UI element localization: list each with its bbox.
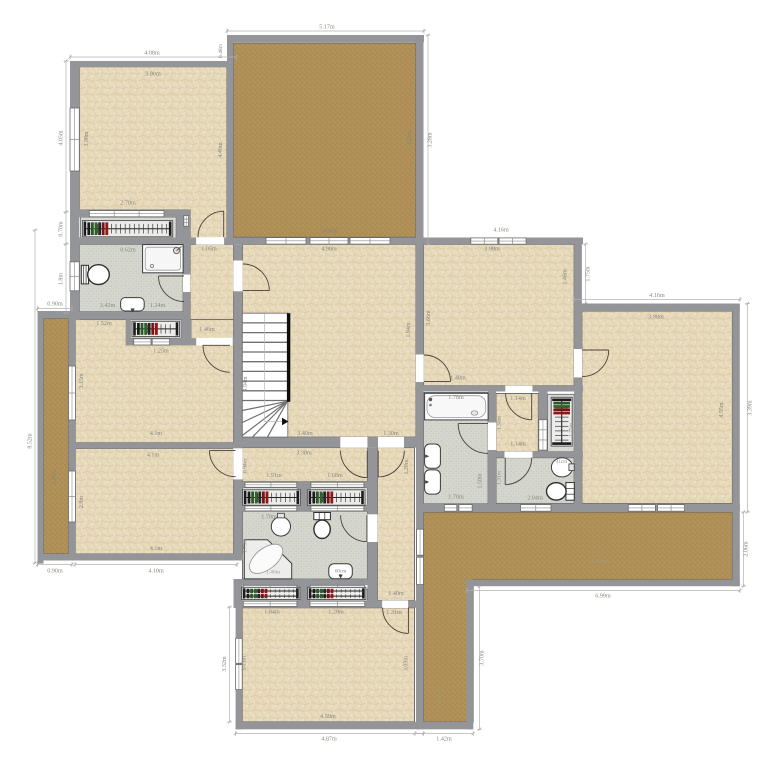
svg-text:3.39m: 3.39m [748,400,754,416]
svg-text:1.70m: 1.70m [261,515,277,521]
svg-text:4.1m: 4.1m [150,546,163,552]
svg-text:1.94m: 1.94m [406,322,412,338]
svg-text:0.62m: 0.62m [120,248,136,254]
svg-text:3.28m: 3.28m [407,130,413,146]
svg-text:8.52m: 8.52m [28,433,34,449]
svg-text:1.31m: 1.31m [497,470,503,485]
svg-text:6.99m: 6.99m [595,594,611,600]
svg-text:4.94m: 4.94m [243,376,249,392]
svg-text:4.87m: 4.87m [321,737,337,743]
svg-text:4.1m: 4.1m [147,453,160,459]
svg-text:3.30m: 3.30m [296,451,312,457]
svg-text:1.05m: 1.05m [201,247,217,253]
svg-text:4.40m: 4.40m [218,142,224,158]
svg-text:1.50m: 1.50m [478,473,484,489]
svg-text:1.42m: 1.42m [436,737,452,743]
svg-text:1.46m: 1.46m [199,327,215,333]
svg-text:3.98m: 3.98m [484,247,500,253]
svg-text:1.25m: 1.25m [153,349,169,355]
svg-text:4.05m: 4.05m [59,130,65,146]
svg-text:1.52m: 1.52m [96,321,112,327]
svg-text:6.05m: 6.05m [52,469,58,485]
svg-text:1.84m: 1.84m [264,610,280,616]
svg-text:3.03m: 3.03m [404,656,410,672]
svg-text:1.75m: 1.75m [569,422,575,437]
svg-text:4.10m: 4.10m [148,569,164,575]
svg-text:1.20m: 1.20m [404,459,410,475]
svg-text:3.70m: 3.70m [480,650,486,666]
svg-text:0.90m: 0.90m [47,569,63,575]
svg-text:1.91m: 1.91m [266,473,282,479]
svg-text:2.70m: 2.70m [120,201,136,207]
svg-text:0.70m: 0.70m [59,221,65,237]
svg-text:3.40m: 3.40m [297,431,313,437]
svg-text:4.16m: 4.16m [493,228,509,234]
svg-text:4.59m: 4.59m [320,714,336,720]
svg-text:6.80m: 6.80m [592,558,608,565]
svg-text:4.90m: 4.90m [322,229,338,235]
svg-text:1.14m: 1.14m [510,442,526,448]
svg-text:1.78m: 1.78m [448,395,464,401]
svg-text:3.28m: 3.28m [428,132,434,148]
svg-text:1.73m: 1.73m [243,538,249,553]
svg-text:0.94m: 0.94m [243,458,249,473]
svg-text:4.1m: 4.1m [150,431,163,437]
svg-text:3.98m: 3.98m [84,131,90,147]
svg-text:1.50m: 1.50m [497,415,503,430]
svg-text:1.14m: 1.14m [510,396,526,402]
svg-text:1.29m: 1.29m [328,610,344,616]
svg-text:0.48m: 0.48m [218,43,224,58]
svg-text:5.17m: 5.17m [319,25,335,31]
svg-text:3.98m: 3.98m [648,315,664,321]
svg-text:3.90m: 3.90m [145,72,161,78]
svg-text:1.24m: 1.24m [150,303,166,309]
svg-text:1.68m: 1.68m [327,473,343,479]
svg-text:3.66m: 3.66m [426,310,432,326]
svg-text:1.31m: 1.31m [386,610,402,616]
svg-text:0.90m: 0.90m [47,302,63,308]
svg-text:3.15m: 3.15m [79,373,85,389]
svg-text:41cm: 41cm [556,460,567,465]
svg-text:4.16m: 4.16m [649,293,665,299]
svg-text:3.03m: 3.03m [242,656,248,672]
svg-text:2.8m: 2.8m [79,496,85,509]
svg-text:4.08m: 4.08m [144,51,160,57]
svg-text:1.48m: 1.48m [450,376,466,382]
svg-text:1.46m: 1.46m [563,269,569,285]
svg-text:1.46m: 1.46m [266,570,281,576]
svg-text:60cm: 60cm [335,568,347,574]
svg-text:2.04m: 2.04m [527,496,543,502]
svg-text:1.70m: 1.70m [448,495,464,501]
svg-text:4.90m: 4.90m [321,247,337,253]
svg-text:1.8m: 1.8m [59,273,65,286]
svg-text:2.06m: 2.06m [744,541,750,557]
svg-text:1.75m: 1.75m [586,266,592,282]
svg-text:1.36m: 1.36m [437,693,443,708]
svg-text:3.32m: 3.32m [222,656,228,672]
svg-text:1.30m: 1.30m [383,431,399,437]
svg-text:4.95m: 4.95m [719,402,725,418]
svg-text:1.40m: 1.40m [388,591,404,597]
svg-text:3.42m: 3.42m [100,303,116,309]
